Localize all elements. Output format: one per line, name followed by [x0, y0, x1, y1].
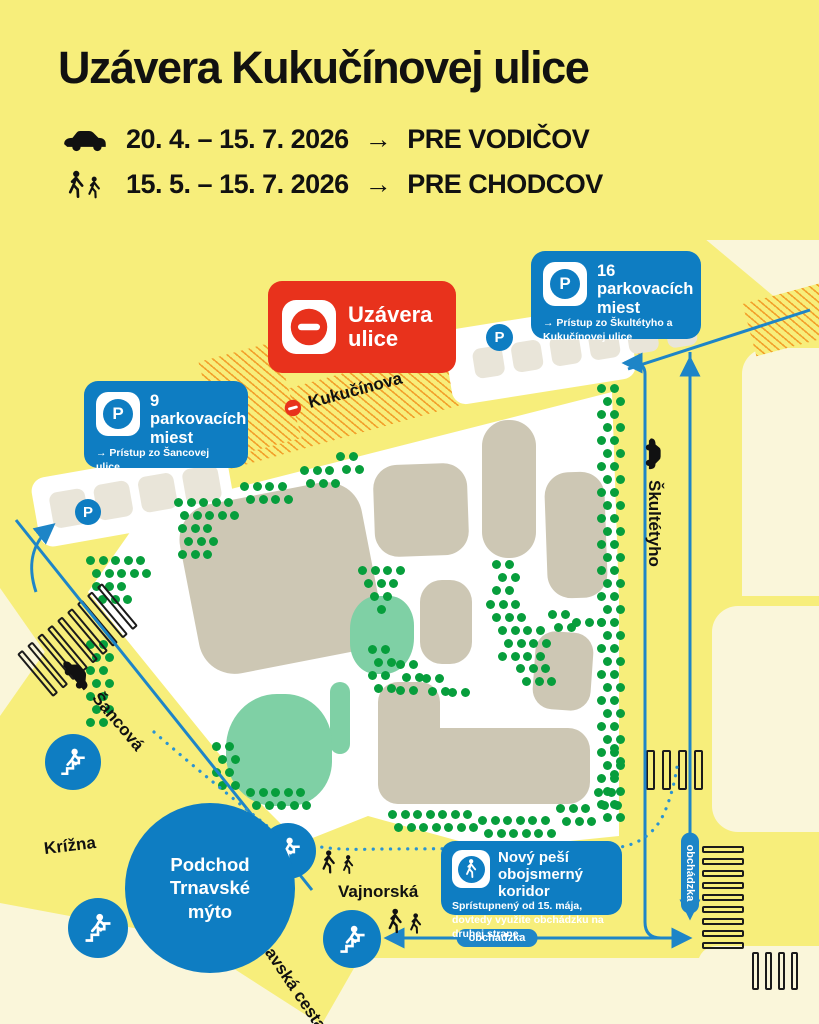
- corridor-badge-note: Sprístupnený od 15. mája, dovtedy využit…: [452, 900, 611, 941]
- corridor-badge-title: Nový peší obojsmerný koridor: [498, 850, 611, 900]
- tree-dot: [603, 501, 612, 510]
- tree-dot: [517, 613, 526, 622]
- tree-dot: [212, 768, 221, 777]
- tree-dot: [422, 674, 431, 683]
- tree-dot: [368, 645, 377, 654]
- parking-space: [510, 339, 544, 373]
- tree-dot: [603, 475, 612, 484]
- tree-dot: [616, 553, 625, 562]
- tree-dot: [610, 488, 619, 497]
- tree-dot: [252, 801, 261, 810]
- crosswalk: [752, 952, 798, 990]
- tree-dot: [616, 449, 625, 458]
- tree-dot: [575, 817, 584, 826]
- tree-dot: [199, 498, 208, 507]
- tree-dot: [610, 592, 619, 601]
- tree-dot: [610, 462, 619, 471]
- tree-dot: [142, 569, 151, 578]
- tree-dot: [498, 626, 507, 635]
- tree-dot: [517, 639, 526, 648]
- tree-dot: [547, 829, 556, 838]
- parking-icon: P: [103, 399, 133, 429]
- page-title: Uzávera Kukučínovej ulice: [58, 42, 603, 94]
- tree-dot: [522, 677, 531, 686]
- tree-dot: [616, 527, 625, 536]
- tree-dot: [253, 482, 262, 491]
- tree-dot: [325, 466, 334, 475]
- tree-dot: [246, 788, 255, 797]
- tree-dot: [616, 757, 625, 766]
- tree-dot: [504, 639, 513, 648]
- tree-dot: [396, 566, 405, 575]
- tree-dot: [358, 566, 367, 575]
- tree-dot: [174, 498, 183, 507]
- tree-dot: [603, 813, 612, 822]
- tree-dot: [419, 823, 428, 832]
- tree-dot: [528, 816, 537, 825]
- tree-dot: [616, 735, 625, 744]
- tree-dot: [616, 657, 625, 666]
- tree-dot: [463, 810, 472, 819]
- tree-dot: [461, 688, 470, 697]
- schedule-row-pedestrians: 15. 5. – 15. 7. 2026 → PRE CHODCOV: [58, 169, 603, 200]
- tree-dot: [569, 804, 578, 813]
- tree-dot: [561, 610, 570, 619]
- tree-dot: [342, 465, 351, 474]
- tree-dot: [607, 788, 616, 797]
- tree-dot: [383, 566, 392, 575]
- tree-dot: [284, 788, 293, 797]
- cream-area-right-mid: [712, 606, 819, 832]
- cream-area-right-upper: [742, 348, 819, 596]
- parking-badge-title: 16 parkovacích miest: [597, 262, 693, 317]
- tree-dot: [313, 466, 322, 475]
- tree-dot: [597, 748, 606, 757]
- tree-dot: [92, 569, 101, 578]
- tree-dot: [486, 600, 495, 609]
- stairs-icon: [323, 910, 381, 968]
- tree-dot: [581, 804, 590, 813]
- tree-dot: [603, 397, 612, 406]
- tree-dot: [548, 610, 557, 619]
- tree-dot: [597, 774, 606, 783]
- tree-dot: [492, 613, 501, 622]
- tree-dot: [377, 579, 386, 588]
- tree-dot: [616, 475, 625, 484]
- tree-dot: [505, 586, 514, 595]
- tree-dot: [336, 452, 345, 461]
- tree-dot: [603, 553, 612, 562]
- tree-dot: [191, 550, 200, 559]
- tree-dot: [426, 810, 435, 819]
- tree-dot: [230, 511, 239, 520]
- tree-dot: [597, 488, 606, 497]
- closure-badge: Uzávera ulice: [268, 281, 456, 373]
- tree-dot: [556, 804, 565, 813]
- pedestrians-icon: [386, 908, 423, 935]
- tree-dot: [529, 639, 538, 648]
- tree-dot: [597, 644, 606, 653]
- tree-dot: [610, 384, 619, 393]
- tree-dot: [212, 742, 221, 751]
- tree-dot: [383, 592, 392, 601]
- tree-dot: [457, 823, 466, 832]
- tree-dot: [240, 482, 249, 491]
- tree-dot: [536, 652, 545, 661]
- parking-badge-title: 9 parkovacích miest: [150, 392, 246, 447]
- tree-dot: [444, 823, 453, 832]
- tree-dot: [511, 600, 520, 609]
- tree-dot: [603, 527, 612, 536]
- tree-dot: [616, 501, 625, 510]
- tree-dot: [511, 573, 520, 582]
- car-icon: [58, 128, 110, 152]
- tree-dot: [491, 816, 500, 825]
- tree-dot: [374, 684, 383, 693]
- tree-dot: [572, 618, 581, 627]
- tree-dot: [529, 664, 538, 673]
- tree-dot: [212, 498, 221, 507]
- tree-dot: [355, 465, 364, 474]
- tree-dot: [389, 579, 398, 588]
- tree-dot: [388, 810, 397, 819]
- tree-dot: [492, 560, 501, 569]
- tree-dot: [484, 829, 493, 838]
- tree-dot: [225, 768, 234, 777]
- car-icon: [645, 436, 663, 470]
- tree-dot: [448, 688, 457, 697]
- tree-dot: [535, 677, 544, 686]
- tree-dot: [396, 660, 405, 669]
- tree-dot: [368, 671, 377, 680]
- header: Uzávera Kukučínovej ulice 20. 4. – 15. 7…: [58, 42, 603, 200]
- tree-dot: [616, 397, 625, 406]
- tree-dot: [505, 560, 514, 569]
- tree-dot: [105, 679, 114, 688]
- tree-dot: [371, 566, 380, 575]
- tree-dot: [381, 671, 390, 680]
- tree-dot: [597, 696, 606, 705]
- tree-dot: [610, 722, 619, 731]
- tree-dot: [187, 498, 196, 507]
- tree-dot: [616, 579, 625, 588]
- street-label-skultetyho: Škultétyho: [644, 436, 664, 567]
- parking-badge-16: P 16 parkovacích miest → Prístup zo Škul…: [531, 251, 701, 339]
- schedule-audience: PRE CHODCOV: [407, 169, 603, 200]
- tree-dot: [246, 495, 255, 504]
- street-label-vajnorska: Vajnorská: [338, 882, 418, 902]
- tree-dot: [603, 709, 612, 718]
- tree-dot: [218, 755, 227, 764]
- tree-dot: [203, 550, 212, 559]
- tree-dot: [265, 482, 274, 491]
- tree-dot: [130, 569, 139, 578]
- stairs-icon: [45, 734, 101, 790]
- tree-dot: [603, 735, 612, 744]
- tree-dot: [300, 466, 309, 475]
- parking-badge-access: → Prístup zo Šancovej ulice: [96, 447, 236, 474]
- tree-dot: [218, 511, 227, 520]
- tree-dot: [278, 482, 287, 491]
- tree-dot: [123, 595, 132, 604]
- tree-dot: [610, 410, 619, 419]
- tree-dot: [597, 540, 606, 549]
- tree-dot: [610, 744, 619, 753]
- tree-dot: [117, 569, 126, 578]
- tree-dot: [209, 537, 218, 546]
- tree-dot: [178, 524, 187, 533]
- tree-dot: [259, 495, 268, 504]
- tree-dot: [603, 657, 612, 666]
- tree-dot: [117, 582, 126, 591]
- parking-space: [137, 472, 179, 514]
- tree-dot: [451, 810, 460, 819]
- tree-dot: [610, 514, 619, 523]
- tree-dot: [509, 829, 518, 838]
- tree-dot: [180, 511, 189, 520]
- schedule-row-drivers: 20. 4. – 15. 7. 2026 → PRE VODIČOV: [58, 124, 603, 155]
- tree-dot: [401, 810, 410, 819]
- tree-dot: [402, 673, 411, 682]
- tree-dot: [523, 652, 532, 661]
- cream-area-bottom-mid: [322, 958, 700, 1024]
- tree-dot: [554, 623, 563, 632]
- tree-dot: [178, 550, 187, 559]
- tree-dot: [105, 569, 114, 578]
- tree-dot: [265, 801, 274, 810]
- tree-dot: [469, 823, 478, 832]
- tree-dot: [86, 556, 95, 565]
- tree-dot: [610, 696, 619, 705]
- tree-dot: [587, 817, 596, 826]
- underpass-circle: Podchod Trnavské mýto: [125, 803, 295, 973]
- tree-dot: [597, 566, 606, 575]
- tree-dot: [302, 801, 311, 810]
- tree-dot: [290, 801, 299, 810]
- parking-icon: P: [486, 324, 513, 351]
- detour-pill-vertical: obchádzka: [681, 833, 699, 914]
- tree-dot: [603, 631, 612, 640]
- no-entry-icon: [282, 300, 336, 354]
- tree-dot: [370, 592, 379, 601]
- tree-dot: [99, 666, 108, 675]
- tree-dot: [610, 618, 619, 627]
- tree-dot: [600, 801, 609, 810]
- tree-dot: [547, 677, 556, 686]
- tree-dot: [541, 816, 550, 825]
- tree-dot: [603, 449, 612, 458]
- tree-dot: [603, 579, 612, 588]
- tree-dot: [225, 742, 234, 751]
- building: [420, 580, 472, 664]
- arrow-icon: →: [365, 169, 392, 200]
- tree-dot: [296, 788, 305, 797]
- pedestrian-icon: [458, 856, 485, 883]
- tree-dot: [387, 658, 396, 667]
- tree-dot: [409, 686, 418, 695]
- closure-badge-label: Uzávera: [348, 303, 432, 327]
- tree-dot: [498, 573, 507, 582]
- tree-dot: [497, 829, 506, 838]
- tree-dot: [205, 511, 214, 520]
- tree-dot: [193, 511, 202, 520]
- tree-dot: [259, 788, 268, 797]
- tree-dot: [271, 495, 280, 504]
- tree-dot: [534, 829, 543, 838]
- tree-dot: [594, 788, 603, 797]
- tree-dot: [218, 781, 227, 790]
- stairs-icon: [68, 898, 128, 958]
- tree-dot: [413, 810, 422, 819]
- tree-dot: [377, 605, 386, 614]
- schedule-dates: 15. 5. – 15. 7. 2026: [126, 169, 349, 200]
- pedestrians-icon: [320, 850, 355, 875]
- tree-dot: [516, 664, 525, 673]
- tree-dot: [610, 644, 619, 653]
- tree-dot: [616, 787, 625, 796]
- tree-dot: [541, 664, 550, 673]
- green-area: [330, 682, 350, 754]
- arrow-icon: →: [365, 124, 392, 155]
- tree-dot: [394, 823, 403, 832]
- tree-dot: [438, 810, 447, 819]
- parking-icon: P: [550, 269, 580, 299]
- tree-dot: [396, 686, 405, 695]
- tree-dot: [597, 410, 606, 419]
- tree-dot: [284, 495, 293, 504]
- tree-dot: [610, 670, 619, 679]
- tree-dot: [616, 683, 625, 692]
- tree-dot: [231, 781, 240, 790]
- tree-dot: [613, 801, 622, 810]
- building: [482, 420, 536, 558]
- tree-dot: [349, 452, 358, 461]
- tree-dot: [381, 645, 390, 654]
- tree-dot: [616, 423, 625, 432]
- tree-dot: [136, 556, 145, 565]
- tree-dot: [374, 658, 383, 667]
- tree-dot: [603, 761, 612, 770]
- tree-dot: [597, 462, 606, 471]
- schedule-dates: 20. 4. – 15. 7. 2026: [126, 124, 349, 155]
- tree-dot: [516, 816, 525, 825]
- tree-dot: [511, 626, 520, 635]
- closed-street-hatch-corner: [742, 282, 819, 356]
- tree-dot: [124, 556, 133, 565]
- tree-dot: [99, 556, 108, 565]
- tree-dot: [478, 816, 487, 825]
- tree-dot: [616, 631, 625, 640]
- parking-icon: P: [75, 499, 101, 525]
- tree-dot: [597, 670, 606, 679]
- schedule-audience: PRE VODIČOV: [407, 124, 589, 155]
- tree-dot: [197, 537, 206, 546]
- tree-dot: [542, 639, 551, 648]
- street-label-krizna: Krížna: [43, 833, 97, 859]
- tree-dot: [319, 479, 328, 488]
- closure-map-poster: P P Kukučínova Škultétyho Šancová Krížna…: [0, 0, 819, 1024]
- tree-dot: [597, 722, 606, 731]
- tree-dot: [597, 592, 606, 601]
- parking-badge-access: → Prístup zo Škultétyho a Kukučínovej ul…: [543, 317, 689, 344]
- tree-dot: [331, 479, 340, 488]
- tree-dot: [271, 788, 280, 797]
- tree-dot: [191, 524, 200, 533]
- tree-dot: [105, 653, 114, 662]
- tree-dot: [409, 660, 418, 669]
- tree-dot: [505, 613, 514, 622]
- tree-dot: [597, 384, 606, 393]
- building: [378, 728, 590, 804]
- tree-dot: [511, 652, 520, 661]
- tree-dot: [492, 586, 501, 595]
- tree-dot: [616, 813, 625, 822]
- tree-dot: [610, 566, 619, 575]
- tree-dot: [184, 537, 193, 546]
- tree-dot: [603, 683, 612, 692]
- no-entry-icon: [282, 397, 303, 418]
- tree-dot: [428, 687, 437, 696]
- tree-dot: [522, 829, 531, 838]
- tree-dot: [86, 718, 95, 727]
- tree-dot: [603, 605, 612, 614]
- tree-dot: [499, 600, 508, 609]
- tree-dot: [503, 816, 512, 825]
- tree-dot: [203, 524, 212, 533]
- tree-dot: [231, 755, 240, 764]
- crosswalk: [702, 846, 744, 949]
- crosswalk: [646, 750, 703, 790]
- tree-dot: [407, 823, 416, 832]
- tree-dot: [597, 514, 606, 523]
- tree-dot: [432, 823, 441, 832]
- corridor-badge: Nový peší obojsmerný koridor Sprístupnen…: [441, 841, 622, 915]
- tree-dot: [610, 540, 619, 549]
- tree-dot: [597, 618, 606, 627]
- tree-dot: [603, 423, 612, 432]
- tree-dot: [306, 479, 315, 488]
- tree-dot: [536, 626, 545, 635]
- tree-dot: [610, 770, 619, 779]
- pedestrians-icon: [58, 170, 110, 200]
- tree-dot: [585, 618, 594, 627]
- tree-dot: [616, 605, 625, 614]
- building: [372, 462, 469, 557]
- tree-dot: [111, 556, 120, 565]
- tree-dot: [523, 626, 532, 635]
- tree-dot: [224, 498, 233, 507]
- parking-badge-9: P 9 parkovacích miest → Prístup zo Šanco…: [84, 381, 248, 468]
- tree-dot: [364, 579, 373, 588]
- tree-dot: [616, 709, 625, 718]
- tree-dot: [597, 436, 606, 445]
- tree-dot: [498, 652, 507, 661]
- tree-dot: [610, 436, 619, 445]
- tree-dot: [277, 801, 286, 810]
- tree-dot: [435, 674, 444, 683]
- tree-dot: [387, 684, 396, 693]
- tree-dot: [562, 817, 571, 826]
